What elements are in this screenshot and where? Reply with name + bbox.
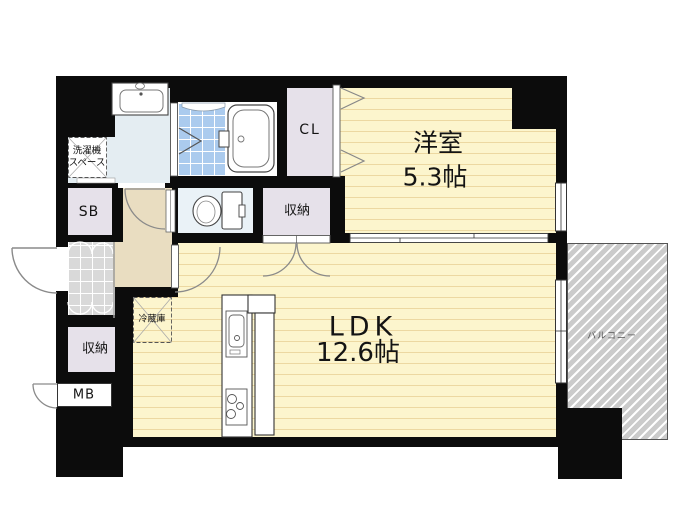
label-storage-upper: 収納 <box>284 205 310 218</box>
closet-door-panel <box>333 85 340 177</box>
label-meter-box: MB <box>73 389 95 402</box>
kitchen-stove <box>226 389 247 425</box>
bathtub <box>219 105 274 172</box>
label-shoe-box: SB <box>79 205 100 219</box>
western-room-window <box>556 183 567 231</box>
floor-plan: 洋室 5.3帖 LDK 12.6帖 CL SB MB 収納 収納 洗濯機 スペー… <box>0 0 700 525</box>
washroom-threshold <box>77 178 115 183</box>
toilet-door <box>166 190 175 232</box>
entrance-tile-arcs <box>68 242 113 314</box>
washroom-door <box>125 189 165 229</box>
label-refrigerator: 冷蔵庫 <box>138 316 165 325</box>
kitchen-sink <box>226 311 247 357</box>
label-ldk-size: 12.6帖 <box>316 340 400 366</box>
washbasin <box>112 83 168 115</box>
label-western-room-name: 洋室 <box>413 131 463 156</box>
label-washer-space-line1: 洗濯機 <box>73 146 102 156</box>
label-western-room-size: 5.3帖 <box>403 165 468 190</box>
toilet <box>193 192 245 229</box>
fixtures-overlay <box>0 0 700 525</box>
room-partition-slider <box>350 234 548 243</box>
label-balcony: バルコニー <box>587 333 637 342</box>
label-ldk-name: LDK <box>329 314 398 341</box>
bathroom-door <box>171 103 178 176</box>
ldk-balcony-window <box>556 280 567 383</box>
bathroom-door-chevron <box>179 128 201 154</box>
storage-upper-doors <box>263 236 330 277</box>
label-closet-cl: CL <box>299 123 321 137</box>
label-washer-space-line2: スペース <box>69 158 106 168</box>
closet-bifold-chevrons <box>341 88 364 172</box>
meter-box-door <box>33 384 57 408</box>
label-storage-lower: 収納 <box>82 343 108 356</box>
bathroom-counter <box>182 103 225 111</box>
entrance-door <box>12 248 57 293</box>
hallway-ldk-door <box>172 245 221 292</box>
